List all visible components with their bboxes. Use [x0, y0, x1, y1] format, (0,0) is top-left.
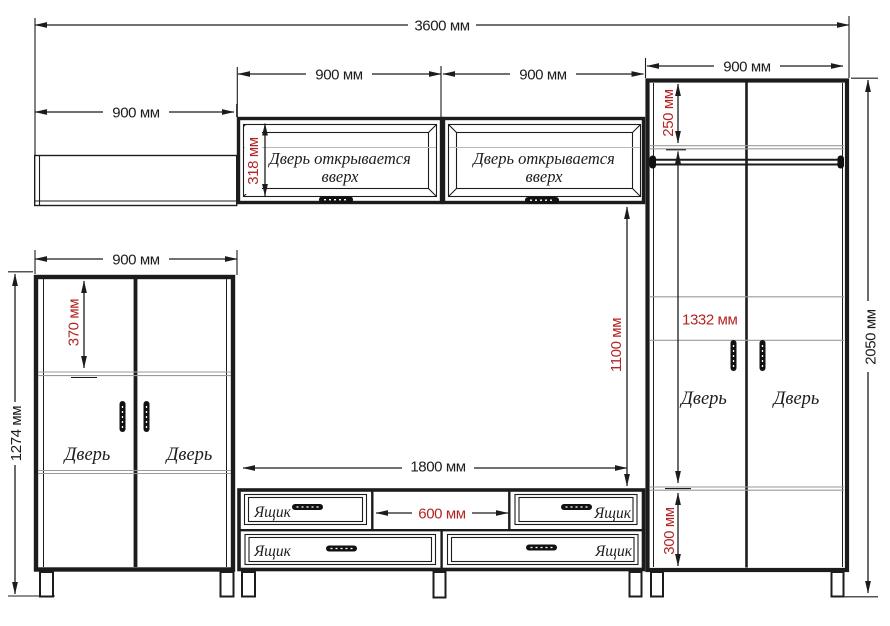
- svg-text:2050 мм: 2050 мм: [863, 309, 880, 364]
- svg-text:вверх: вверх: [322, 167, 360, 186]
- svg-text:318 мм: 318 мм: [245, 137, 262, 185]
- svg-text:Ящик: Ящик: [253, 504, 292, 521]
- svg-text:3600 мм: 3600 мм: [414, 18, 469, 35]
- svg-text:Ящик: Ящик: [593, 505, 632, 522]
- svg-text:Ящик: Ящик: [594, 543, 633, 560]
- svg-text:Ящик: Ящик: [253, 543, 292, 560]
- svg-text:370 мм: 370 мм: [66, 299, 83, 347]
- svg-text:Дверь: Дверь: [165, 445, 213, 465]
- svg-text:300 мм: 300 мм: [661, 507, 678, 555]
- svg-text:Дверь: Дверь: [772, 389, 820, 409]
- svg-text:250 мм: 250 мм: [660, 89, 677, 137]
- svg-text:900 мм: 900 мм: [112, 252, 160, 269]
- svg-text:1100 мм: 1100 мм: [608, 318, 625, 372]
- svg-text:900 мм: 900 мм: [519, 67, 567, 84]
- svg-text:Дверь: Дверь: [679, 389, 727, 409]
- svg-text:900 мм: 900 мм: [315, 67, 363, 84]
- svg-text:600 мм: 600 мм: [418, 506, 466, 523]
- svg-text:Дверь: Дверь: [63, 445, 111, 465]
- svg-text:вверх: вверх: [526, 167, 564, 186]
- svg-text:900 мм: 900 мм: [112, 105, 160, 122]
- svg-text:1332 мм: 1332 мм: [682, 312, 737, 329]
- svg-text:900 мм: 900 мм: [723, 59, 771, 76]
- svg-text:Дверь открывается: Дверь открывается: [471, 149, 615, 168]
- svg-text:1274 мм: 1274 мм: [8, 406, 25, 461]
- svg-text:1800 мм: 1800 мм: [410, 459, 465, 476]
- svg-text:Дверь открывается: Дверь открывается: [267, 149, 411, 168]
